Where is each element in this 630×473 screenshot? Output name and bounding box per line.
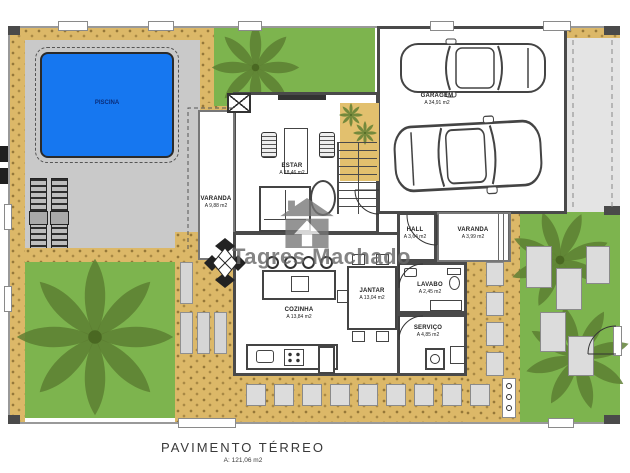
stepping-stone: [586, 246, 610, 284]
dining-chair: [337, 290, 348, 303]
floor-plan-canvas: PISCINA: [0, 0, 630, 473]
fence-gate-segment: [58, 21, 88, 31]
meter-dial: [506, 383, 512, 389]
watermark-text: Tagres Machado: [232, 244, 452, 270]
paver-slab: [180, 262, 193, 304]
refrigerator: [318, 346, 335, 374]
lounger-frame: [29, 211, 48, 225]
stepping-stone: [386, 384, 406, 406]
stepping-stone: [486, 322, 504, 346]
house-watermark-icon: [277, 198, 337, 248]
armchair: [319, 132, 335, 158]
swimming-pool: PISCINA: [40, 52, 174, 158]
stepping-stone: [568, 336, 594, 376]
tv-panel: [278, 95, 326, 100]
fence-gate-segment: [148, 21, 174, 31]
wall-post: [604, 206, 620, 215]
stepping-stone: [470, 384, 490, 406]
stove: [284, 349, 304, 366]
driveway: [567, 38, 620, 212]
column-marker-icon: [227, 93, 251, 113]
sun-lounger: [30, 178, 47, 252]
lounger-frame: [50, 211, 69, 225]
car-icon: [398, 38, 548, 98]
fence-gate-segment: [238, 21, 262, 31]
meter-dial: [506, 394, 512, 400]
vanity-counter: [430, 300, 462, 311]
stepping-stone: [358, 384, 378, 406]
stepping-stone: [540, 312, 566, 352]
fence-gate-segment: [178, 418, 236, 428]
dining-chair: [352, 331, 365, 342]
plan-title-area: A: 121,06 m2: [148, 457, 338, 464]
wall-post: [604, 26, 620, 35]
stepping-stone: [274, 384, 294, 406]
sun-lounger: [51, 178, 68, 252]
stepping-stone: [486, 292, 504, 316]
pedestrian-gate: [613, 326, 622, 356]
stepping-stone: [414, 384, 434, 406]
room-label-estar: ESTAR A 18,46 m2: [271, 163, 313, 176]
title-block: PAVIMENTO TÉRREO A: 121,06 m2: [148, 440, 338, 464]
laundry-tub: [450, 346, 465, 364]
stepping-stone: [486, 262, 504, 286]
fence-gate-segment: [430, 21, 454, 31]
meter-dial: [506, 405, 512, 411]
stair-stringer: [358, 142, 359, 214]
room-label-hall: HALL A 3,64 m2: [399, 227, 431, 240]
fence-gate-segment: [548, 418, 574, 428]
washing-machine: [425, 348, 445, 370]
fence-gate-segment: [543, 21, 571, 31]
room-label-jantar: JANTAR A 13,04 m2: [351, 288, 393, 301]
entry-steps: [498, 214, 510, 260]
dining-chair: [376, 331, 389, 342]
armchair: [261, 132, 277, 158]
pool-label: PISCINA: [42, 100, 172, 106]
stepping-stone: [442, 384, 462, 406]
room-label-garagem: GARAGEM A 34,91 m2: [411, 93, 463, 106]
stepping-stone: [246, 384, 266, 406]
utility-meter-box: [502, 378, 516, 418]
fence-gate-segment: [4, 286, 12, 312]
room-label-lavabo: LAVABO A 2,45 m2: [409, 282, 451, 295]
paver-slab: [214, 312, 227, 354]
stepping-stone: [556, 268, 582, 310]
staircase: [337, 142, 377, 214]
stepping-stone: [330, 384, 350, 406]
kitchen-sink: [256, 350, 274, 363]
neighbor-wall-mark: [0, 146, 8, 162]
car-icon: [390, 112, 546, 200]
room-label-varanda-pool: VARANDA A 9,88 m2: [196, 196, 236, 209]
paver-slab: [180, 312, 193, 354]
wall-post: [604, 415, 620, 424]
fence-gate-segment: [4, 204, 12, 230]
room-label-cozinha: COZINHA A 13,84 m2: [277, 307, 321, 320]
neighbor-wall-mark: [0, 168, 8, 184]
plan-title: PAVIMENTO TÉRREO: [148, 440, 338, 455]
paver-slab: [197, 312, 210, 354]
wall-post: [8, 415, 20, 424]
stepping-stone: [486, 352, 504, 376]
wall-post: [8, 26, 20, 35]
stepping-stone: [302, 384, 322, 406]
palm-tree-icon: [10, 252, 180, 422]
island-cooktop: [291, 276, 309, 292]
stepping-stone: [526, 246, 552, 288]
room-label-servico: SERVIÇO A 4,85 m2: [406, 325, 450, 338]
room-label-varanda-entry: VARANDA A 3,99 m2: [452, 227, 494, 240]
washer-door: [430, 354, 440, 364]
